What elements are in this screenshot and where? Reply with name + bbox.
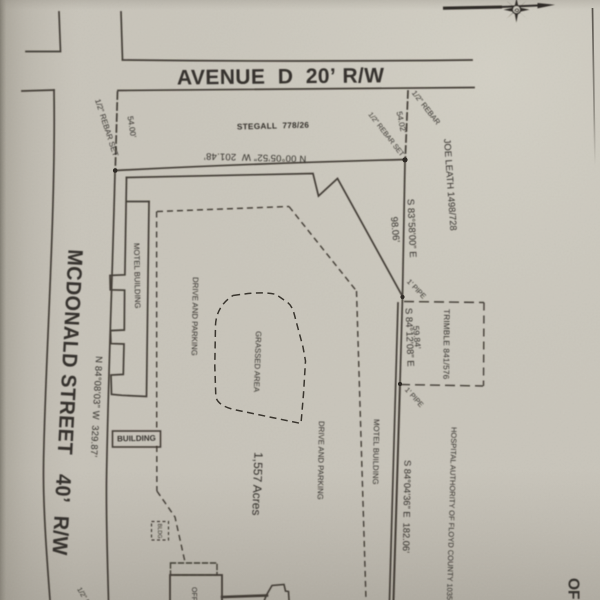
svg-text:98.06’: 98.06’	[388, 216, 401, 243]
svg-text:STEGALL 778/26: STEGALL 778/26	[237, 121, 310, 132]
svg-text:OFFICE: OFFICE	[190, 587, 197, 600]
svg-text:BUILDING: BUILDING	[117, 434, 156, 444]
svg-text:MOTEL BUILDING: MOTEL BUILDING	[371, 419, 381, 485]
svg-text:MOTEL BUILDING: MOTEL BUILDING	[132, 243, 142, 309]
svg-text:AVENUE D 20’ R/W: AVENUE D 20’ R/W	[177, 64, 385, 89]
svg-text:S 84°04’36” E 182.06’: S 84°04’36” E 182.06’	[401, 460, 413, 553]
svg-text:DRIVE AND PARKING: DRIVE AND PARKING	[316, 421, 326, 500]
svg-text:1,557 Acres: 1,557 Acres	[249, 452, 265, 516]
svg-text:BLDG: BLDG	[156, 524, 162, 539]
svg-text:TRIMBLE 841/576: TRIMBLE 841/576	[441, 309, 451, 380]
svg-text:DRIVE AND PARKING: DRIVE AND PARKING	[190, 277, 200, 356]
svg-text:OF: OF	[565, 578, 582, 600]
svg-text:59.84’: 59.84’	[411, 325, 423, 349]
